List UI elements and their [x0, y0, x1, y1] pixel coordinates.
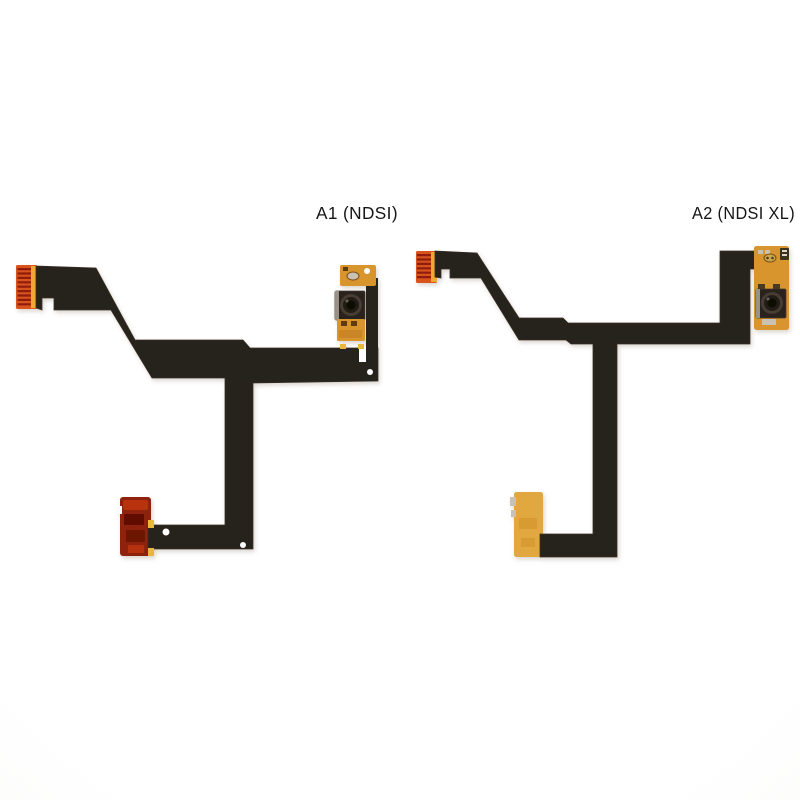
small-component [758, 250, 763, 254]
cable-a1 [16, 265, 378, 556]
flex-ribbon-a2 [435, 251, 772, 557]
dark-component [351, 321, 357, 326]
chip-marking [782, 254, 787, 256]
lens-highlight [767, 298, 770, 301]
solder-tab [340, 344, 346, 349]
oval-pin [771, 257, 774, 260]
red-flex-notch [118, 506, 122, 514]
red-flex-highlight [128, 545, 144, 553]
photo-background: A1 (NDSI) A2 (NDSI XL) [0, 0, 800, 800]
chip-marking [782, 250, 787, 252]
edge-component [511, 510, 516, 517]
alignment-hole [240, 542, 246, 548]
pin-connector-a2 [416, 251, 437, 283]
small-component [765, 250, 770, 254]
red-flex-mark [126, 530, 145, 542]
red-flex-mark [124, 514, 144, 525]
dark-component [758, 284, 765, 289]
camera-metal-edge [335, 291, 339, 320]
dark-component [773, 284, 780, 289]
dark-mark [343, 267, 348, 271]
red-flex-highlight [123, 500, 148, 510]
screw-hole [364, 268, 370, 274]
label-a1: A1 (NDSI) [316, 203, 398, 223]
flex-ribbon-a1 [36, 266, 378, 549]
solder-tab [358, 344, 364, 349]
edge-component [510, 497, 516, 506]
gold-smudge [339, 330, 362, 338]
label-a2: A2 (NDSI XL) [692, 203, 795, 223]
gold-contact-pad-a1 [340, 265, 376, 286]
camera-metal-edge [756, 289, 760, 318]
camera-module-a2 [756, 289, 786, 318]
product-photo: A1 (NDSI) A2 (NDSI XL) [0, 0, 800, 800]
gold-flex-end-a2 [510, 492, 543, 557]
solder-tab [148, 520, 154, 528]
lens-highlight [346, 300, 349, 303]
gold-smudge [519, 518, 537, 529]
alignment-hole [163, 529, 170, 536]
oval-component [764, 254, 776, 262]
red-flex-end-a1 [118, 497, 151, 556]
camera-strip-a1 [366, 278, 378, 350]
camera-flex-pad-a1 [337, 319, 365, 349]
cable-a2 [416, 246, 789, 557]
small-component [762, 319, 776, 325]
dark-component [341, 321, 347, 326]
oval-pin [766, 257, 769, 260]
alignment-hole [367, 369, 373, 375]
pin-connector-a1 [16, 265, 37, 309]
oval-component [347, 272, 359, 280]
camera-module-a1 [335, 291, 365, 320]
gold-smudge [521, 538, 535, 547]
solder-tab [148, 548, 154, 556]
